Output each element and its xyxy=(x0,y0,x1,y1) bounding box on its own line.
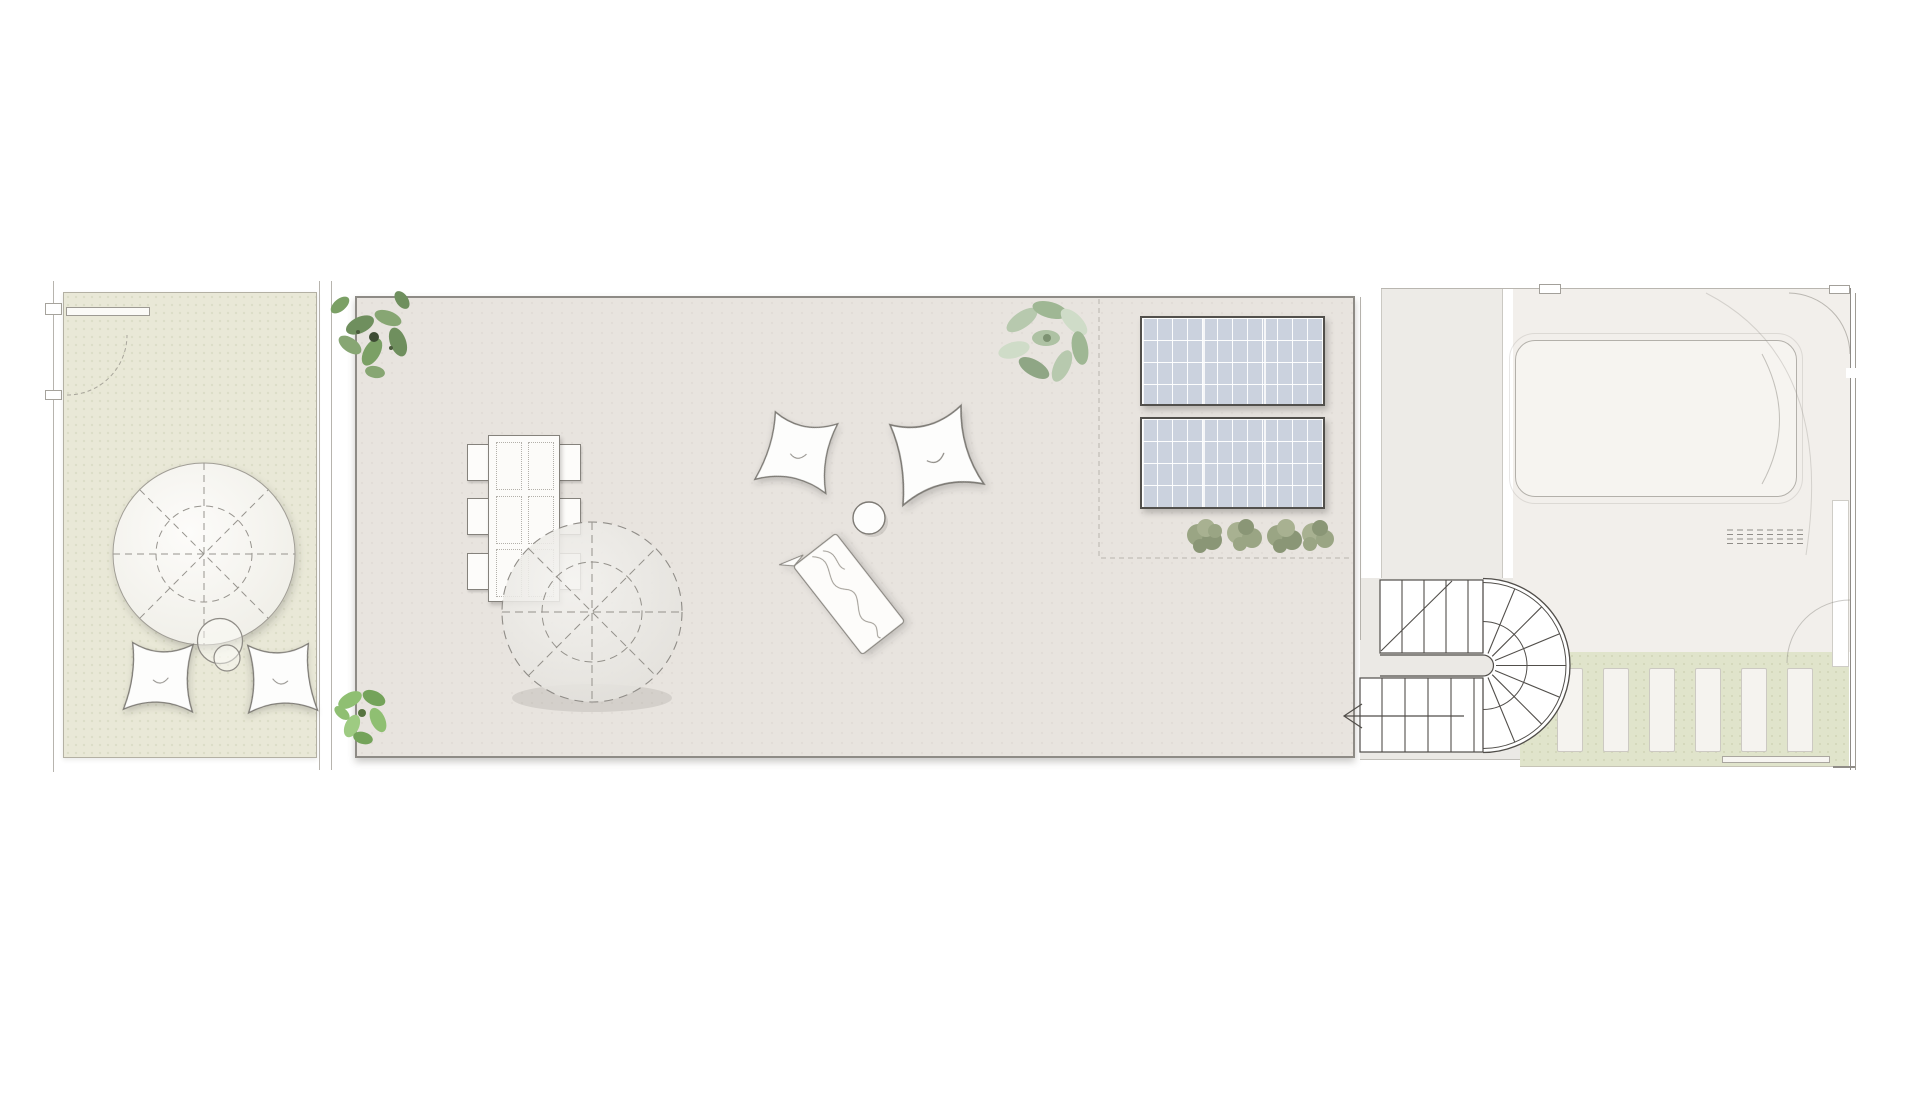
floor-plan-canvas xyxy=(0,0,1920,1103)
pergola-slat xyxy=(1787,668,1813,752)
placemat xyxy=(528,496,554,544)
pergola-slat xyxy=(1695,668,1721,752)
stair-landing-zone xyxy=(1381,288,1503,578)
wall-opening xyxy=(45,303,62,315)
wall-pier xyxy=(1829,285,1850,294)
pergola-slat xyxy=(1741,668,1767,752)
wall-opening xyxy=(1846,368,1858,378)
threshold-step xyxy=(1722,756,1830,763)
top-boundary-line xyxy=(1381,288,1850,289)
pergola-slat xyxy=(1603,668,1629,752)
stair-well-zone xyxy=(1360,578,1520,760)
garden-boundary-wall xyxy=(53,281,54,772)
rooflight-canopy xyxy=(1515,340,1797,497)
right-perimeter-wall xyxy=(1855,293,1856,770)
side-passage xyxy=(1832,500,1849,667)
wall-end-tick xyxy=(1833,766,1855,768)
solar-panel xyxy=(1140,417,1325,509)
placemat xyxy=(528,549,554,597)
party-wall-line xyxy=(331,281,332,770)
placemat xyxy=(528,442,554,490)
wall-opening xyxy=(45,390,62,400)
solar-panel xyxy=(1140,316,1325,406)
wall-pier xyxy=(1539,284,1561,294)
pergola-slat xyxy=(1557,668,1583,752)
right-perimeter-wall xyxy=(1850,288,1851,770)
dining-table xyxy=(488,435,560,602)
placemat xyxy=(496,496,522,544)
party-wall-line xyxy=(319,281,320,770)
terrace-right-wall-line xyxy=(1360,297,1361,640)
pergola-slat xyxy=(1649,668,1675,752)
garden-patio-zone xyxy=(63,292,317,758)
placemat xyxy=(496,549,522,597)
placemat xyxy=(496,442,522,490)
planter-bench xyxy=(66,307,150,316)
